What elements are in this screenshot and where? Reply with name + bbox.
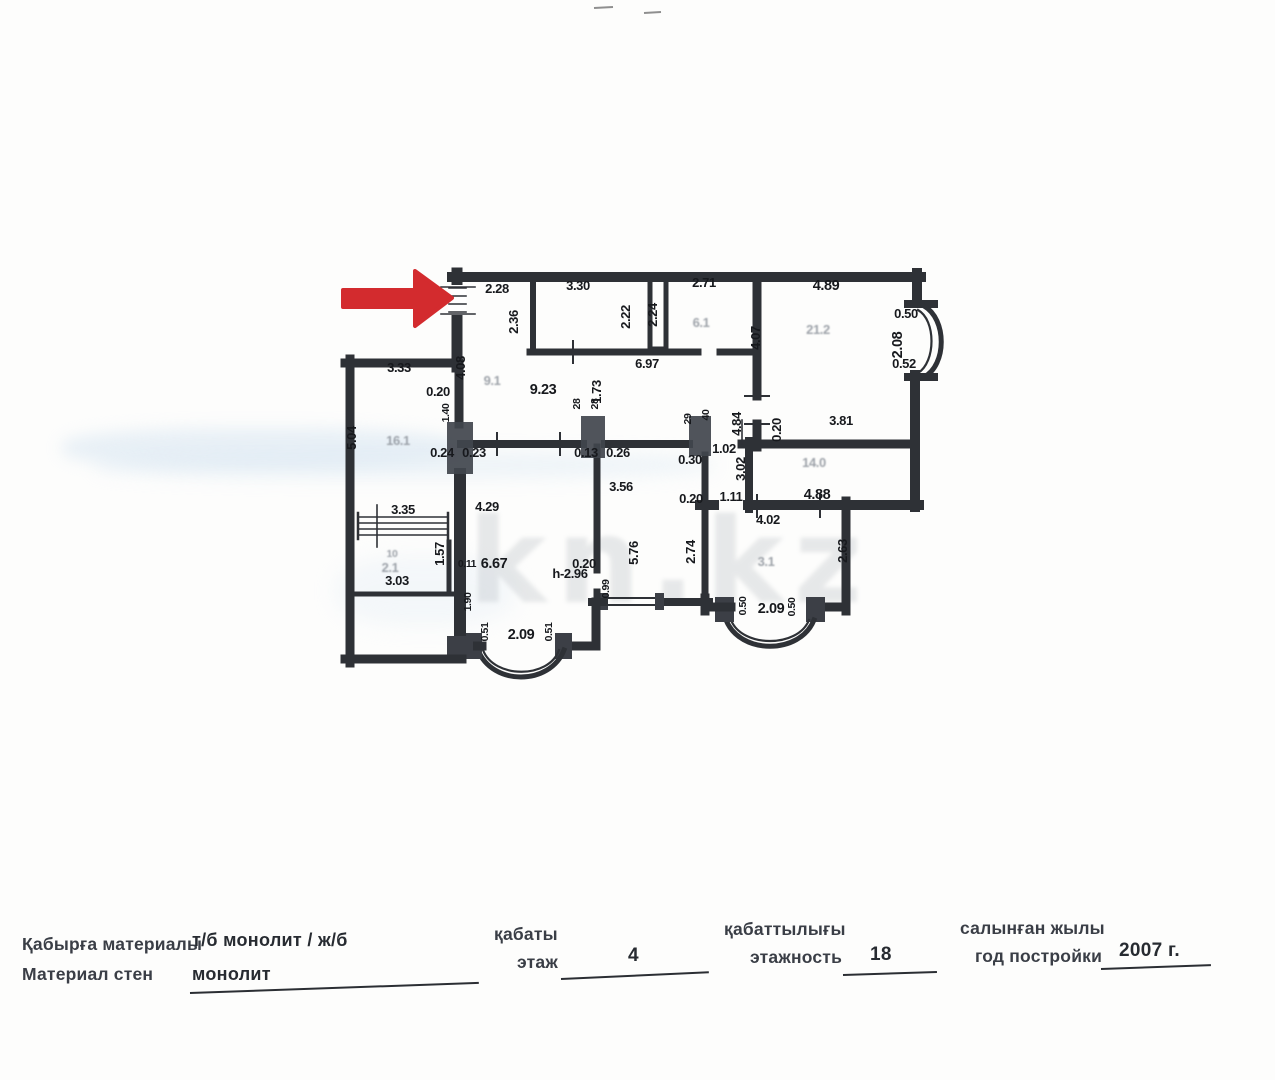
field-wall-material: Қабырға материалы Материал стен [22,934,202,985]
dimension-label: 4.29 [475,499,499,514]
dimension-label: 3.56 [609,479,633,494]
field-year-built: салынған жылы год постройки [960,918,1105,967]
scanned-floorplan-page: kn.kz [0,0,1275,1080]
dimension-label: 9.1 [484,373,501,388]
dimension-label: 4.88 [804,487,831,503]
dimension-label: 28 [571,398,583,409]
dimension-label: 0.20 [769,418,784,442]
attention-arrow-icon [343,271,452,326]
dimension-label: 0.30 [678,452,702,467]
dimension-label: 3.35 [391,502,415,517]
dimension-label: 2.24 [645,302,660,327]
dimension-label: 6.97 [635,356,659,371]
dimension-label: 0.50 [737,596,749,615]
dimension-label: 3.1 [758,554,775,569]
dimension-label: 0.50 [894,306,918,321]
dimension-label: 1.57 [432,542,447,566]
dimension-label: 21.2 [806,322,830,337]
dimension-label: 5.04 [344,425,359,450]
dimension-label: 0.11 [458,558,477,570]
dimension-label: 2.63 [835,539,850,563]
dimension-label: 2.09 [758,601,785,617]
dimension-label: 0.23 [462,445,486,460]
total-floors-label-ru: этажность [750,947,846,968]
dimension-label: 2.36 [506,310,521,334]
dimension-label: 5.76 [626,541,641,565]
dimension-label: 0.20 [426,384,450,399]
dimension-label: 0.99 [600,579,612,598]
wall-material-value: т/б монолит / ж/б [192,930,348,951]
dimension-label: h-2.96 [552,566,587,581]
dimension-label: 3.02 [733,457,748,481]
dimension-label: 3.81 [829,413,853,428]
dimension-label: 29 [682,413,694,424]
dimension-label: 1.11 [720,489,743,504]
dimension-label: 4.08 [453,356,468,380]
dimension-label: 2.74 [683,539,698,564]
dimension-label: 3.03 [385,573,409,588]
total-floors-label-kk: қабаттылығы [724,919,846,940]
field-floor: қабаты этаж [494,924,558,973]
year-built-label-kk: салынған жылы [960,918,1105,939]
dimension-label: 6.1 [693,315,710,330]
dimension-label: 0.26 [606,445,630,460]
wall-material-label-kk: Қабырға материалы [22,934,202,955]
dimension-label: 0.13 [574,445,598,460]
dimension-label: 1.40 [440,403,452,422]
dimension-label: 4.84 [729,411,744,436]
year-built-value: 2007 г. [1119,940,1180,962]
dimension-label: 3.30 [566,278,590,293]
wall-material-label-ru: Материал стен [22,964,202,985]
dimension-label: 3.33 [387,360,411,375]
dimension-label: 0.50 [786,597,798,616]
dimension-label: 1.02 [712,441,736,456]
dimension-label: 2.28 [485,281,509,296]
floor-value: 4 [628,945,639,967]
dimension-label: 6.67 [481,556,508,572]
dimension-label: 16.1 [386,433,410,448]
scan-artifacts [594,7,661,13]
dimension-label: 9.23 [530,382,557,398]
wall-material-value-line2: монолит [192,964,271,985]
dimension-label: 4.02 [756,512,780,527]
dimension-label: 0.52 [892,356,916,371]
dimension-label: 4.07 [748,326,763,350]
total-floors-value: 18 [870,944,892,966]
field-total-floors: қабаттылығы этажность [724,919,846,968]
dimension-label: 40 [700,409,712,420]
dimension-label: 2.22 [618,305,633,329]
dimension-label: 1.90 [462,592,474,611]
dimension-label: 2.08 [890,331,906,358]
dimension-label: 0.24 [430,445,455,460]
dimension-label: 4.89 [813,278,840,294]
dimension-label: 2.71 [692,275,716,290]
dimension-label: 0.20 [679,491,703,506]
dimension-label: 14.0 [802,455,826,470]
dimension-label: 2.09 [508,627,535,643]
floor-label-ru: этаж [517,952,558,973]
year-built-label-ru: год постройки [975,946,1105,967]
dimension-label: 0.51 [543,622,555,641]
dimension-label: 10 [387,548,398,560]
floor-label-kk: қабаты [494,924,558,945]
dimension-label: 0.51 [479,622,491,641]
dimension-label: 28 [589,398,601,409]
